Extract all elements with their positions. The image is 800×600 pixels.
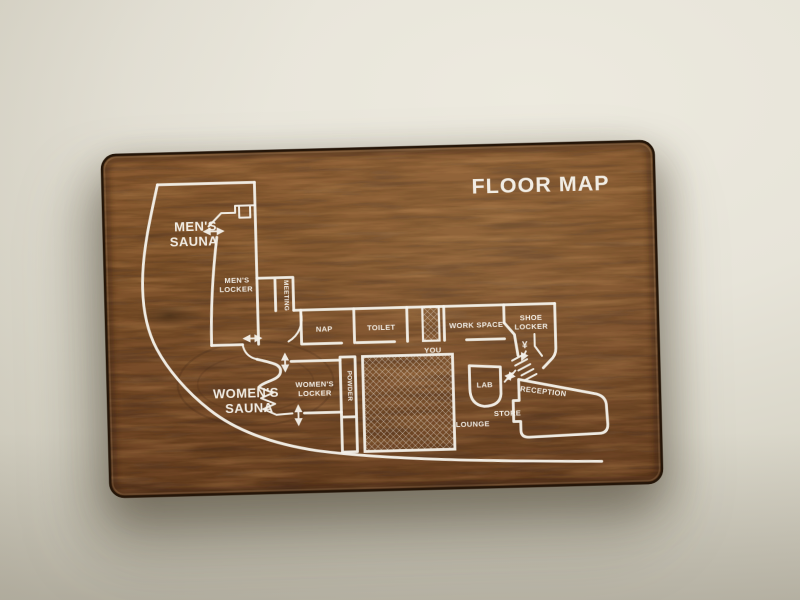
label-toilet: TOILET [367,323,396,333]
label-mens-locker: LOCKER [219,284,253,294]
hatched-floor-area [362,354,454,451]
label-work-space: WORK SPACE [449,320,503,330]
label-womens-locker: LOCKER [298,388,332,398]
label-powder: POWDER [345,371,353,402]
label-meeting: MEETING [282,280,290,311]
label-lab: LAB [476,380,493,389]
label-nap: NAP [316,324,333,333]
label-womens-sauna: SAUNA [225,400,274,416]
you-location-marker [422,307,439,341]
floor-map: FLOOR MAP MEN'S SAUNA MEN'S LOCKER MEETI… [99,131,664,507]
floor-map-sign: FLOOR MAP MEN'S SAUNA MEN'S LOCKER MEETI… [99,131,664,507]
yen-icon: ¥ [522,340,528,351]
photo-wall: FLOOR MAP MEN'S SAUNA MEN'S LOCKER MEETI… [0,0,800,600]
label-womens-sauna: WOMEN'S [213,385,279,402]
label-shoe-locker: LOCKER [514,322,548,332]
label-mens-sauna: SAUNA [170,233,219,249]
label-you: YOU [424,345,441,354]
label-lounge: LOUNGE [456,419,490,429]
label-mens-sauna: MEN'S [174,218,217,234]
floor-map-title: FLOOR MAP [471,171,610,199]
label-store: STORE [494,408,521,418]
